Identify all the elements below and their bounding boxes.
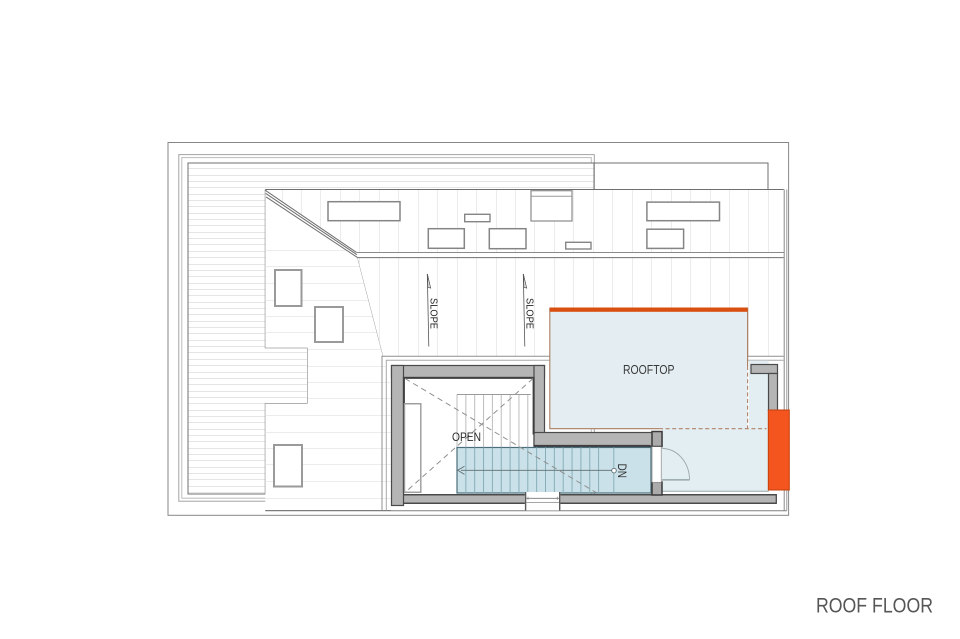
svg-text:SLOPE: SLOPE <box>523 298 535 329</box>
svg-text:ROOFTOP: ROOFTOP <box>623 363 675 377</box>
svg-text:SLOPE: SLOPE <box>427 298 439 329</box>
svg-text:DN: DN <box>615 464 627 479</box>
svg-text:OPEN: OPEN <box>452 432 481 444</box>
svg-text:ROOF FLOOR: ROOF FLOOR <box>816 595 933 618</box>
